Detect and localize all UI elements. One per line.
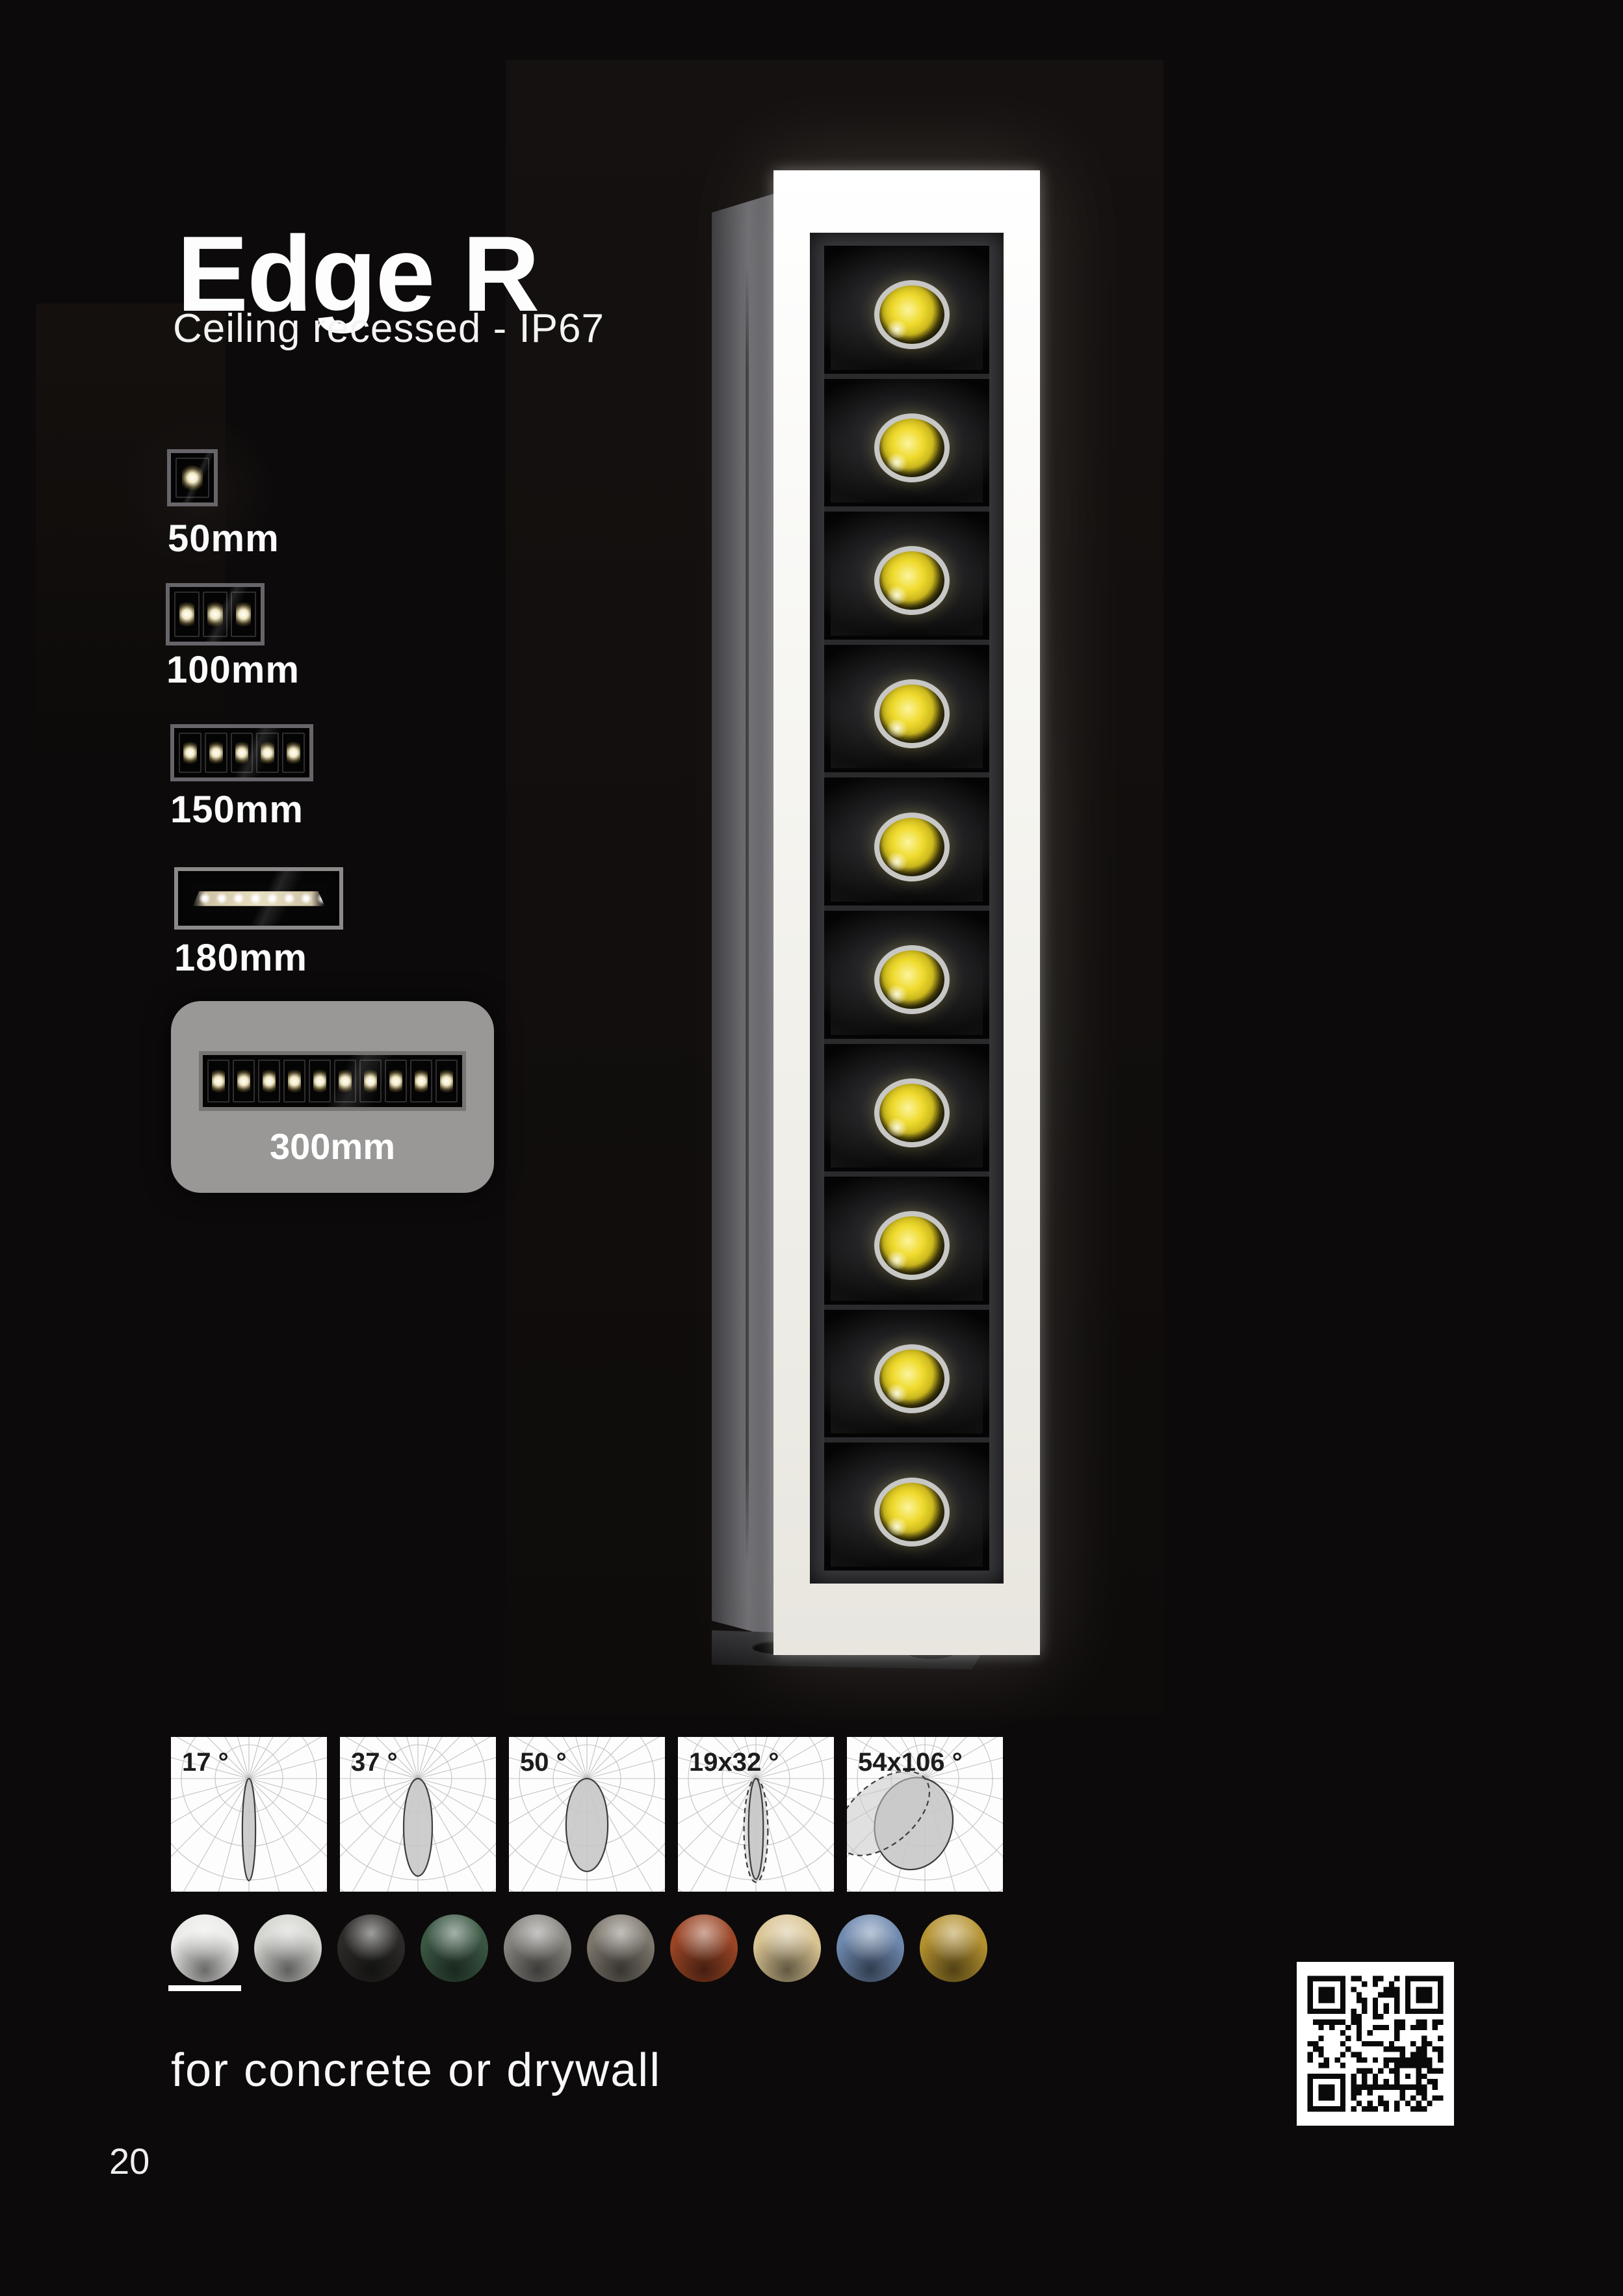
- beam-diagram-17: 17 °: [171, 1737, 327, 1892]
- led-optic: [874, 1211, 950, 1280]
- finish-swatch-light-grey[interactable]: [254, 1914, 322, 1982]
- led-module: [824, 1044, 989, 1177]
- beam-angle-label: 54x106 °: [858, 1748, 963, 1777]
- luminaire-housing: [712, 192, 778, 1638]
- led-cell: [309, 1060, 331, 1102]
- led-optic: [874, 413, 950, 482]
- size-thumbnail-300mm: [199, 1051, 466, 1111]
- beam-diagram-svg: 37 °: [340, 1737, 496, 1892]
- qr-code-svg: [1297, 1962, 1454, 2126]
- led-strip: [207, 1060, 458, 1102]
- led-dot: [212, 1067, 225, 1095]
- led-dot: [288, 1067, 301, 1095]
- led-dot: [440, 1067, 453, 1095]
- beam-diagram-19x32: 19x32 °: [678, 1737, 834, 1892]
- page-number: 20: [109, 2141, 149, 2182]
- mounting-note: for concrete or drywall: [171, 2045, 661, 2096]
- led-dot: [364, 1067, 377, 1095]
- led-optic: [874, 813, 950, 881]
- beam-angle-label: 17 °: [182, 1748, 229, 1777]
- beam-angle-label: 37 °: [351, 1748, 398, 1777]
- led-module: [824, 645, 989, 778]
- led-module: [824, 911, 989, 1044]
- led-cell: [203, 592, 228, 637]
- led-optic: [874, 1078, 950, 1147]
- size-label-100mm: 100mm: [166, 651, 300, 689]
- led-cell: [385, 1060, 407, 1102]
- led-optic: [874, 1478, 950, 1546]
- catalog-page: Edge R Ceiling recessed - IP67 50mm 100m…: [0, 0, 1623, 2296]
- led-cell: [175, 458, 209, 498]
- page-subtitle: Ceiling recessed - IP67: [173, 307, 604, 351]
- led-dot: [263, 1067, 276, 1095]
- led-dot: [207, 600, 223, 629]
- led-strip: [174, 592, 256, 637]
- inner-bezel: [810, 233, 1004, 1584]
- beam-diagram-svg: 19x32 °: [678, 1737, 834, 1892]
- beam-diagram-svg: 17 °: [171, 1737, 327, 1892]
- led-strip: [179, 733, 305, 773]
- size-thumbnail-50mm[interactable]: [167, 449, 218, 506]
- led-cell: [207, 1060, 229, 1102]
- led-cell: [231, 592, 256, 637]
- led-strip: [175, 458, 209, 498]
- led-cell: [205, 733, 227, 773]
- led-cell: [410, 1060, 432, 1102]
- illuminated-trim-frame: [773, 170, 1040, 1655]
- led-optic: [874, 679, 950, 748]
- led-dot: [415, 1067, 428, 1095]
- led-cell: [282, 733, 305, 773]
- beam-angle-label: 50 °: [520, 1748, 567, 1777]
- size-label-300mm: 300mm: [171, 1128, 494, 1165]
- led-channel: [824, 246, 989, 1571]
- finish-swatch-steel-blue[interactable]: [837, 1914, 904, 1982]
- finish-swatch-white[interactable]: [171, 1914, 239, 1982]
- led-cell: [334, 1060, 356, 1102]
- beam-diagram-37: 37 °: [340, 1737, 496, 1892]
- led-dot: [261, 740, 274, 765]
- led-cell: [435, 1060, 458, 1102]
- beam-diagram-svg: 50 °: [509, 1737, 665, 1892]
- size-thumbnail-150mm[interactable]: [170, 724, 313, 781]
- beam-diagram-svg: 54x106 °: [847, 1737, 1003, 1892]
- led-module: [824, 777, 989, 911]
- led-cell: [283, 1060, 305, 1102]
- led-optic: [874, 280, 950, 349]
- led-optic: [874, 945, 950, 1014]
- led-module: [824, 1442, 989, 1571]
- led-cell: [233, 1060, 255, 1102]
- size-label-50mm: 50mm: [168, 520, 279, 558]
- finish-swatch-forest-green[interactable]: [421, 1914, 488, 1982]
- led-cell: [359, 1060, 382, 1102]
- wallwash-led-strip: [192, 891, 324, 906]
- size-thumbnail-100mm[interactable]: [166, 583, 265, 646]
- led-cell: [258, 1060, 280, 1102]
- size-thumbnail-180mm[interactable]: [174, 867, 343, 930]
- selected-finish-underline: [168, 1985, 241, 1991]
- finish-swatch-brass[interactable]: [920, 1914, 987, 1982]
- led-cell: [174, 592, 200, 637]
- led-module: [824, 512, 989, 645]
- led-dot: [209, 740, 223, 765]
- led-cell: [179, 733, 201, 773]
- led-dot: [287, 740, 300, 765]
- led-dot: [182, 465, 203, 490]
- led-module: [824, 1177, 989, 1310]
- size-label-150mm: 150mm: [170, 791, 304, 829]
- finish-swatch-taupe-grey[interactable]: [587, 1914, 655, 1982]
- led-module: [824, 1310, 989, 1443]
- led-dot: [313, 1067, 326, 1095]
- led-module: [824, 379, 989, 512]
- led-cell: [256, 733, 279, 773]
- led-dot: [236, 600, 252, 629]
- beam-diagrams: 17 °37 °50 °19x32 °54x106 °: [171, 1737, 1003, 1892]
- led-cell: [231, 733, 253, 773]
- led-optic: [874, 546, 950, 615]
- finish-swatch-black[interactable]: [337, 1914, 405, 1982]
- led-optic: [874, 1344, 950, 1413]
- led-dot: [237, 1067, 250, 1095]
- finish-swatch-corten-red[interactable]: [670, 1914, 738, 1982]
- beam-angle-label: 19x32 °: [689, 1748, 779, 1777]
- size-label-180mm: 180mm: [174, 939, 307, 977]
- led-dot: [389, 1067, 402, 1095]
- beam-diagram-50: 50 °: [509, 1737, 665, 1892]
- beam-diagram-54x106: 54x106 °: [847, 1737, 1003, 1892]
- led-dot: [183, 740, 197, 765]
- finish-swatch-champagne[interactable]: [753, 1914, 821, 1982]
- led-dot: [339, 1067, 352, 1095]
- led-module: [824, 246, 989, 379]
- size-option-300mm-selected[interactable]: 300mm: [171, 1001, 494, 1193]
- led-dot: [235, 740, 249, 765]
- qr-code[interactable]: [1297, 1962, 1454, 2126]
- finish-swatch-grey[interactable]: [504, 1914, 571, 1982]
- led-dot: [179, 600, 195, 629]
